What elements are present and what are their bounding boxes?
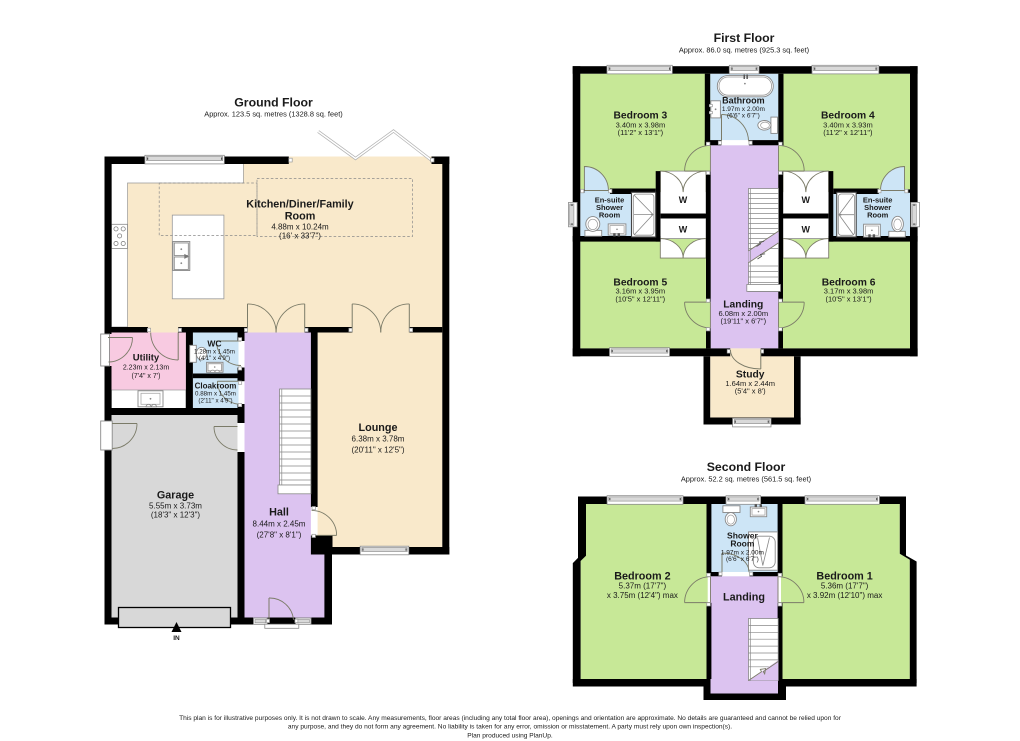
svg-text:First Floor: First Floor xyxy=(714,31,775,45)
svg-text:(11'2" x 12'11"): (11'2" x 12'11") xyxy=(823,128,873,137)
svg-text:(10'5" x 13'1"): (10'5" x 13'1") xyxy=(826,294,873,303)
svg-text:W: W xyxy=(679,195,688,205)
svg-text:(4'1" x 4'9"): (4'1" x 4'9") xyxy=(199,355,230,362)
svg-text:(27'8" x 8'1"): (27'8" x 8'1") xyxy=(257,531,302,540)
svg-text:5.36m (17'7"): 5.36m (17'7") xyxy=(821,582,869,591)
svg-text:x 3.92m (12'10") max: x 3.92m (12'10") max xyxy=(807,591,883,600)
svg-text:Utility: Utility xyxy=(133,353,160,364)
svg-text:Cloakroom: Cloakroom xyxy=(195,382,237,391)
svg-text:W: W xyxy=(679,225,688,235)
svg-text:8.44m x 2.45m: 8.44m x 2.45m xyxy=(253,520,306,529)
svg-text:(5'4" x 8'): (5'4" x 8') xyxy=(735,387,766,396)
svg-text:5.55m x 3.73m: 5.55m x 3.73m xyxy=(149,502,202,511)
svg-text:Ground Floor: Ground Floor xyxy=(234,96,313,110)
svg-text:6.38m x 3.78m: 6.38m x 3.78m xyxy=(352,435,405,444)
svg-text:(10'5" x 12'11"): (10'5" x 12'11") xyxy=(615,294,665,303)
svg-text:Approx. 123.5 sq. metres (1328: Approx. 123.5 sq. metres (1328.8 sq. fee… xyxy=(204,110,342,119)
svg-text:Room: Room xyxy=(867,211,889,220)
svg-text:Room: Room xyxy=(599,211,621,220)
svg-text:Lounge: Lounge xyxy=(359,422,398,434)
svg-text:(7'4" x 7'): (7'4" x 7') xyxy=(132,373,161,380)
svg-text:(6'6" x 6'7"): (6'6" x 6'7") xyxy=(727,113,760,120)
svg-text:any purpose, and they do not f: any purpose, and they do not form any ag… xyxy=(288,724,732,731)
svg-text:5.37m (17'7"): 5.37m (17'7") xyxy=(619,582,667,591)
svg-text:(6'6" x 6'7"): (6'6" x 6'7") xyxy=(726,556,759,563)
svg-text:Kitchen/Diner/Family: Kitchen/Diner/Family xyxy=(246,199,353,211)
svg-text:(19'11" x 6'7"): (19'11" x 6'7") xyxy=(721,317,767,326)
svg-text:Second Floor: Second Floor xyxy=(707,460,786,474)
svg-text:(11'2" x 13'1"): (11'2" x 13'1") xyxy=(618,128,664,137)
svg-text:4.88m x 10.24m: 4.88m x 10.24m xyxy=(271,223,329,232)
svg-text:Garage: Garage xyxy=(157,490,194,502)
svg-text:(16' x 33'7"): (16' x 33'7") xyxy=(279,232,321,241)
svg-text:W: W xyxy=(802,195,811,205)
svg-text:Approx. 52.2 sq. metres (561.5: Approx. 52.2 sq. metres (561.5 sq. feet) xyxy=(681,475,811,484)
svg-text:This plan is for illustrative: This plan is for illustrative purposes o… xyxy=(179,715,842,722)
svg-text:Hall: Hall xyxy=(269,507,289,519)
svg-text:WC: WC xyxy=(207,339,221,349)
svg-text:Approx. 86.0 sq. metres (925.3: Approx. 86.0 sq. metres (925.3 sq. feet) xyxy=(679,46,809,55)
svg-text:(2'11" x 4'9"): (2'11" x 4'9") xyxy=(198,397,232,404)
svg-text:Plan produced using PlanUp.: Plan produced using PlanUp. xyxy=(467,732,553,739)
svg-text:(18'3" x 12'3"): (18'3" x 12'3") xyxy=(151,511,201,520)
svg-text:IN: IN xyxy=(173,635,180,642)
svg-text:2.23m x 2.13m: 2.23m x 2.13m xyxy=(123,365,169,372)
svg-text:(20'11" x 12'5"): (20'11" x 12'5") xyxy=(351,446,404,455)
svg-text:Room: Room xyxy=(730,539,755,549)
svg-text:W: W xyxy=(802,225,811,235)
svg-text:Room: Room xyxy=(285,211,316,223)
svg-text:x 3.75m (12'4") max: x 3.75m (12'4") max xyxy=(607,591,678,600)
svg-text:Landing: Landing xyxy=(723,592,765,604)
svg-text:Bathroom: Bathroom xyxy=(722,96,765,106)
